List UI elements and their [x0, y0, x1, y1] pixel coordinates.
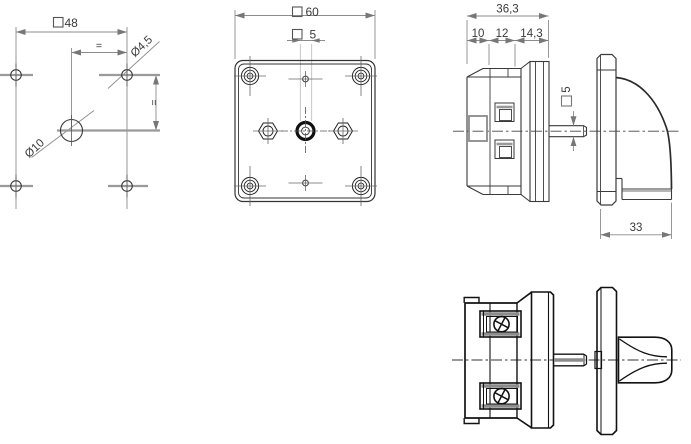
- terminal-clamp: [495, 140, 514, 159]
- dim-mid-depth: 12: [496, 28, 509, 40]
- v3-terminal-clamps: [495, 103, 514, 159]
- terminal-screw-assembly: [480, 311, 521, 337]
- dim-center-hole-diameter: Ø10: [23, 137, 47, 161]
- front-view: 60 5: [234, 5, 377, 206]
- knob-plate: [597, 55, 616, 206]
- v2-shaft-extension-lines: [300, 44, 311, 121]
- hex-nut: [253, 118, 283, 144]
- dim-equal-vertical: =: [148, 99, 160, 105]
- dim-rear-depth: 10: [472, 28, 485, 40]
- v3-side-tab: [469, 116, 487, 141]
- knob-handle-curve: [616, 78, 672, 190]
- dim-shaft-square-5: 5: [310, 27, 317, 41]
- square-symbol-icon: [562, 96, 572, 106]
- knob-plate: [597, 288, 617, 435]
- dim-total-depth: 36,3: [496, 4, 518, 16]
- dim-shaft-square-5: 5: [561, 86, 573, 92]
- dim-front-depth: 14,3: [520, 28, 542, 40]
- dim-plate-square-60: 60: [306, 5, 320, 19]
- dim-knob-depth: 33: [630, 222, 643, 234]
- terminal-clamp: [495, 103, 514, 122]
- dim-corner-hole-diameter: Ø4,5: [129, 34, 155, 60]
- knob-top-profile: [595, 288, 672, 435]
- square-symbol-icon: [293, 30, 303, 40]
- dim-plate-square-48: 48: [65, 16, 79, 30]
- bottom-view: [452, 288, 681, 435]
- small-hole: [289, 175, 323, 191]
- mounting-hole-plan-view: 48 = = Ø4,5 Ø10: [0, 16, 160, 209]
- terminal-screw-assembly: [480, 383, 521, 409]
- knob-side-profile: [597, 55, 672, 206]
- v1-centerline-stubs: [0, 75, 160, 186]
- square-symbol-icon: [54, 18, 64, 28]
- hex-nut: [328, 118, 358, 144]
- side-view: 36,3 10 12 14,3 5 33: [453, 4, 680, 240]
- drawing-sheet: 48 = = Ø4,5 Ø10: [0, 0, 691, 444]
- dim-equal-horizontal: =: [96, 40, 102, 52]
- small-hole: [289, 71, 323, 87]
- center-shaft: [281, 107, 330, 155]
- v3-dimensions: [467, 16, 672, 239]
